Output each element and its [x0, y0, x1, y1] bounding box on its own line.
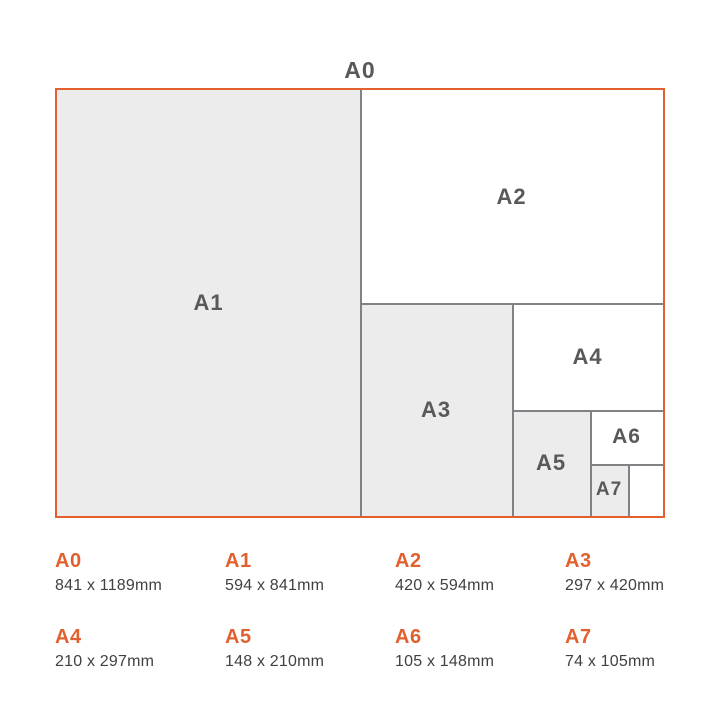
legend-label-a6: A6	[395, 626, 565, 649]
legend-label-a4: A4	[55, 626, 225, 649]
region-a3-label: A3	[421, 397, 451, 423]
region-a5-label: A5	[536, 450, 566, 476]
region-a7: A7	[590, 464, 628, 516]
legend-dimensions-a0: 841 x 1189mm	[55, 577, 225, 595]
a0-sheet-outline: A1 A2 A3 A4 A5 A6 A7	[55, 88, 665, 518]
legend-item-a2: A2 420 x 594mm	[395, 550, 565, 595]
legend-item-a1: A1 594 x 841mm	[225, 550, 395, 595]
legend-label-a3: A3	[565, 550, 720, 573]
legend-dimensions-a7: 74 x 105mm	[565, 653, 720, 671]
legend-dimensions-a6: 105 x 148mm	[395, 653, 565, 671]
divider-a4-bottom	[512, 410, 663, 412]
divider-a6-bottom	[590, 464, 663, 466]
legend-label-a5: A5	[225, 626, 395, 649]
legend-label-a2: A2	[395, 550, 565, 573]
legend-dimensions-a4: 210 x 297mm	[55, 653, 225, 671]
region-a2: A2	[360, 90, 663, 303]
region-a2-label: A2	[496, 184, 526, 210]
legend-item-a0: A0 841 x 1189mm	[55, 550, 225, 595]
legend-label-a1: A1	[225, 550, 395, 573]
region-a1-label: A1	[193, 290, 223, 316]
divider-a5-right	[590, 410, 592, 516]
legend-dimensions-a5: 148 x 210mm	[225, 653, 395, 671]
paper-sizes-diagram: A0 A1 A2 A3 A4 A5 A6 A7 A0	[0, 0, 720, 720]
region-a7-label: A7	[596, 479, 622, 501]
region-a4-label: A4	[572, 344, 602, 370]
region-a5: A5	[512, 410, 590, 516]
legend-item-a3: A3 297 x 420mm	[565, 550, 720, 595]
legend-item-a6: A6 105 x 148mm	[395, 626, 565, 671]
a0-sheet-label: A0	[55, 57, 665, 84]
region-a6: A6	[590, 410, 663, 464]
legend-item-a4: A4 210 x 297mm	[55, 626, 225, 671]
region-a3: A3	[360, 303, 512, 516]
legend-dimensions-a1: 594 x 841mm	[225, 577, 395, 595]
legend-label-a0: A0	[55, 550, 225, 573]
legend-item-a5: A5 148 x 210mm	[225, 626, 395, 671]
legend-dimensions-a3: 297 x 420mm	[565, 577, 720, 595]
region-a4: A4	[512, 303, 663, 410]
legend-label-a7: A7	[565, 626, 720, 649]
legend: A0 841 x 1189mm A1 594 x 841mm A2 420 x …	[55, 550, 695, 671]
region-a1: A1	[57, 90, 360, 516]
region-a6-label: A6	[612, 425, 641, 449]
divider-a7-right	[628, 464, 630, 516]
legend-dimensions-a2: 420 x 594mm	[395, 577, 565, 595]
legend-item-a7: A7 74 x 105mm	[565, 626, 720, 671]
